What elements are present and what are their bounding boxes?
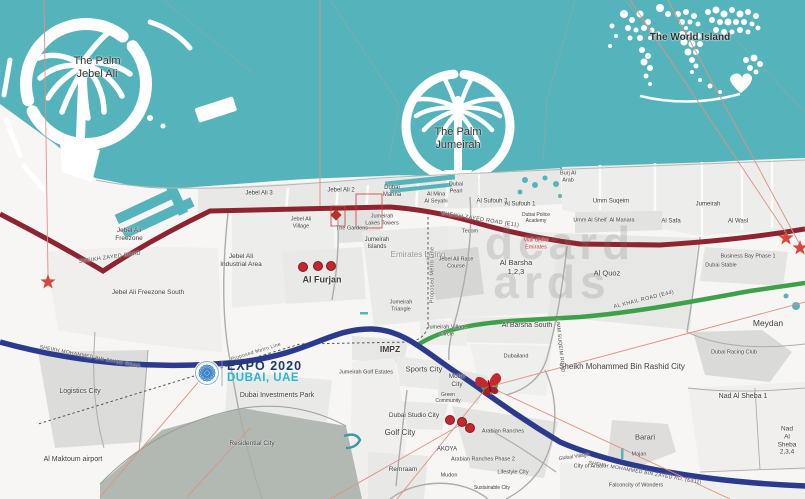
expo2020-logo [194,360,220,386]
dubai-map-canvas[interactable]: dcard ards The Palm Jebel Ali The Palm J… [0,0,805,499]
watermark-line2: ards [493,255,610,309]
map-graphics [0,0,805,499]
